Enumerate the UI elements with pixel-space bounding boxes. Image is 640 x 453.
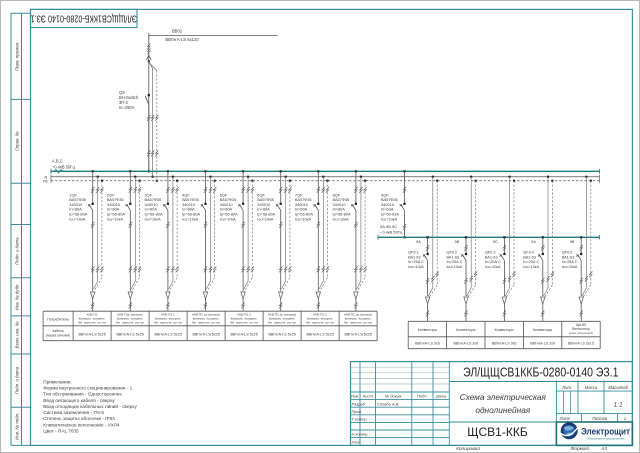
svg-text:ВВГнгА-LS 3х6: ВВГнгА-LS 3х6 <box>415 342 440 346</box>
svg-text:Iсu=10кА: Iсu=10кА <box>145 216 161 221</box>
svg-text:Ввод отходящих кабельных линий: Ввод отходящих кабельных линий - сверху <box>43 403 137 409</box>
svg-text:QF9.4: QF9.4 <box>523 251 534 255</box>
svg-text:In=25А С: In=25А С <box>523 260 539 264</box>
svg-text:ВА1-63: ВА1-63 <box>447 255 460 259</box>
svg-text:Инв. № дубл.: Инв. № дубл. <box>14 283 19 310</box>
svg-text:Утв.: Утв. <box>352 439 361 444</box>
svg-text:Разраб.: Разраб. <box>352 401 366 406</box>
svg-text:Электрощит: Электрощит <box>581 426 631 437</box>
svg-text:ВВГнгА-LS 5х25: ВВГнгА-LS 5х25 <box>192 332 219 336</box>
svg-text:Вн. приточн. уст-ка: Вн. приточн. уст-ка <box>230 321 258 325</box>
svg-text:Копировал: Копировал <box>456 446 480 452</box>
svg-text:Iсu=10кА: Iсu=10кА <box>257 216 273 221</box>
svg-text:Iсu=10кА: Iсu=10кА <box>69 216 85 221</box>
svg-text:Система заземления - TN-S: Система заземления - TN-S <box>43 410 104 415</box>
svg-text:ВА1-63: ВА1-63 <box>523 255 536 259</box>
svg-text:Iсu=10кА: Iсu=10кА <box>182 216 198 221</box>
svg-text:QF9.2: QF9.2 <box>447 251 458 255</box>
svg-text:1: 1 <box>624 416 626 421</box>
svg-text:Вн. приточн. уст-ка: Вн. приточн. уст-ка <box>78 321 106 325</box>
svg-text:Конвекторы: Конвекторы <box>418 328 438 332</box>
svg-text:Iсu=10кА: Iсu=10кА <box>381 216 397 221</box>
svg-text:Подп. и дата: Подп. и дата <box>14 366 19 394</box>
svg-text:ЭЛ/ЩЩСВ1ККБ-0280-0140 ЭЗ.1: ЭЛ/ЩЩСВ1ККБ-0280-0140 ЭЗ.1 <box>30 13 137 24</box>
svg-text:Подп.: Подп. <box>417 394 428 399</box>
svg-text:Форма внутреннего секционирова: Форма внутреннего секционирования - 1 <box>43 385 132 390</box>
svg-text:Iсu=10кА: Iсu=10кА <box>447 265 463 269</box>
svg-text:Т.контр.: Т.контр. <box>352 417 368 422</box>
svg-text:In=250А: In=250А <box>119 105 135 110</box>
svg-text:Обновление и преумножение: Обновление и преумножение <box>586 436 625 440</box>
svg-text:ВА1-63: ВА1-63 <box>408 255 421 259</box>
svg-text:ВВГнгА-LS 5х25: ВВГнгА-LS 5х25 <box>344 332 371 336</box>
svg-text:однолинейная: однолинейная <box>475 405 530 415</box>
svg-text:9В: 9В <box>455 240 460 244</box>
svg-text:~0.4кВ 50Гц: ~0.4кВ 50Гц <box>380 230 403 235</box>
svg-text:Лист: Лист <box>559 416 571 421</box>
svg-text:9А: 9А <box>416 240 421 244</box>
svg-text:A,B,C: A,B,C <box>52 158 63 163</box>
svg-text:Листов: Листов <box>591 416 608 421</box>
svg-text:Взам. инв. №: Взам. инв. № <box>14 321 19 348</box>
svg-text:ВВГнгА-LS 5х25: ВВГнгА-LS 5х25 <box>306 332 333 336</box>
svg-text:Примечания:: Примечания: <box>43 379 71 384</box>
svg-text:ВВГнгА-LS 5х25: ВВГнгА-LS 5х25 <box>78 332 105 336</box>
svg-text:Iсu=10кА: Iсu=10кА <box>220 216 236 221</box>
svg-text:Подп. и дата: Подп. и дата <box>14 237 19 265</box>
svg-text:Вн. приточн. уст-ка: Вн. приточн. уст-ка <box>306 321 334 325</box>
svg-text:ВВГнгА-LS 3х6: ВВГнгА-LS 3х6 <box>530 342 555 346</box>
svg-text:Лит.: Лит. <box>561 385 572 390</box>
svg-text:Тип обслуживания - Односторонн: Тип обслуживания - Одностороннее <box>43 392 122 397</box>
svg-text:Ввод питающего кабеля - сверху: Ввод питающего кабеля - сверху <box>43 398 115 403</box>
svg-text:~0.4кВ 50Гц: ~0.4кВ 50Гц <box>52 164 76 169</box>
svg-text:Словба А.В.: Словба А.В. <box>377 401 400 406</box>
svg-text:ВВГнгА-LS 3х6: ВВГнгА-LS 3х6 <box>492 342 517 346</box>
svg-text:Схема электрическая: Схема электрическая <box>460 392 547 402</box>
svg-text:А3: А3 <box>600 446 607 452</box>
svg-text:ВВГнгА-LS 5х120: ВВГнгА-LS 5х120 <box>165 37 199 42</box>
svg-text:PE: PE <box>43 180 49 184</box>
svg-text:ВВГнгА-LS 5х25: ВВГнгА-LS 5х25 <box>230 332 257 336</box>
svg-text:Iсu=10кА: Iсu=10кА <box>562 265 578 269</box>
svg-text:Кабель: Кабель <box>52 329 64 333</box>
svg-text:9С: 9С <box>493 240 498 244</box>
svg-text:Iсu=10кА: Iсu=10кА <box>523 265 539 269</box>
svg-text:Перв. примен.: Перв. примен. <box>14 42 19 71</box>
svg-text:ВВГнгА-LS 3х2.5: ВВГнгА-LS 3х2.5 <box>568 342 594 346</box>
svg-text:Вн. приточн. уст-ка: Вн. приточн. уст-ка <box>192 321 220 325</box>
svg-text:Вн. приточн. уст-ка: Вн. приточн. уст-ка <box>116 321 144 325</box>
svg-text:(марка сечения): (марка сечения) <box>46 333 70 337</box>
svg-text:Iсu=10кА: Iсu=10кА <box>107 216 123 221</box>
svg-text:ЩСВ1-ККБ: ЩСВ1-ККБ <box>467 425 528 439</box>
svg-text:In=25А С: In=25А С <box>408 260 424 264</box>
svg-text:9В: 9В <box>570 240 575 244</box>
svg-text:Iсu=10кА: Iсu=10кА <box>295 216 311 221</box>
svg-text:ВВ02: ВВ02 <box>172 29 183 34</box>
svg-text:Потребитель: Потребитель <box>47 318 69 322</box>
svg-text:Степень защиты оболочки - IP54: Степень защиты оболочки - IP54 <box>43 416 115 421</box>
svg-text:Вн. приточн. уст-ка: Вн. приточн. уст-ка <box>344 321 372 325</box>
svg-text:In=25А С: In=25А С <box>562 260 578 264</box>
svg-text:Дата: Дата <box>435 394 447 399</box>
svg-text:Н.контр.: Н.контр. <box>352 432 369 437</box>
svg-text:ЭЛ/ЩЩСВ1ККБ-0280-0140 ЭЗ.1: ЭЛ/ЩЩСВ1ККБ-0280-0140 ЭЗ.1 <box>463 367 618 380</box>
svg-text:Справ. №: Справ. № <box>14 131 19 151</box>
svg-text:Цвет - RAL 7035: Цвет - RAL 7035 <box>43 429 79 434</box>
svg-text:ВА1-63: ВА1-63 <box>485 255 498 259</box>
svg-text:9А: 9А <box>531 240 536 244</box>
svg-text:QF9.3: QF9.3 <box>485 251 496 255</box>
svg-text:Вн. приточн. уст-ка: Вн. приточн. уст-ка <box>154 321 182 325</box>
svg-text:ВА1-63: ВА1-63 <box>562 255 575 259</box>
svg-text:ВВГнгА-LS 5х25: ВВГнгА-LS 5х25 <box>268 332 295 336</box>
svg-text:1:1: 1:1 <box>614 401 623 408</box>
svg-text:Лист: Лист <box>362 394 374 399</box>
svg-text:Инв. № подл.: Инв. № подл. <box>14 413 19 440</box>
svg-text:ВВГнгА-LS 3х6: ВВГнгА-LS 3х6 <box>453 342 478 346</box>
svg-text:In=25А С: In=25А С <box>485 260 501 264</box>
svg-text:In=25А С: In=25А С <box>447 260 463 264</box>
svg-text:Масштаб: Масштаб <box>608 385 628 390</box>
svg-text:ВВГнгА-LS 5х25: ВВГнгА-LS 5х25 <box>116 332 143 336</box>
svg-text:QF9.5: QF9.5 <box>562 251 573 255</box>
svg-text:Iсu=10кА: Iсu=10кА <box>485 265 501 269</box>
svg-text:9А,9В,9С: 9А,9В,9С <box>380 224 397 229</box>
svg-text:Формат: Формат <box>570 446 589 452</box>
svg-text:(узел уборочной): (узел уборочной) <box>569 331 593 335</box>
svg-text:№ докум.: № докум. <box>385 394 403 399</box>
svg-text:ВВГнгА-LS 5х25: ВВГнгА-LS 5х25 <box>154 332 181 336</box>
svg-text:Вн. приточн. уст-ка: Вн. приточн. уст-ка <box>268 321 296 325</box>
svg-text:Климатическое исполнение - УХЛ: Климатическое исполнение - УХЛ4 <box>43 422 120 427</box>
svg-text:Iсu=10кА: Iсu=10кА <box>333 216 349 221</box>
svg-text:Конвекторы: Конвекторы <box>533 328 553 332</box>
svg-text:Конвекторы: Конвекторы <box>456 328 476 332</box>
svg-text:Изм.: Изм. <box>351 394 360 399</box>
svg-text:Масса: Масса <box>585 385 598 390</box>
svg-text:Iсu=10кА: Iсu=10кА <box>408 265 424 269</box>
svg-text:QF9.1: QF9.1 <box>408 251 419 255</box>
svg-text:Конвекторы: Конвекторы <box>495 328 515 332</box>
svg-text:Пров.: Пров. <box>352 409 363 414</box>
